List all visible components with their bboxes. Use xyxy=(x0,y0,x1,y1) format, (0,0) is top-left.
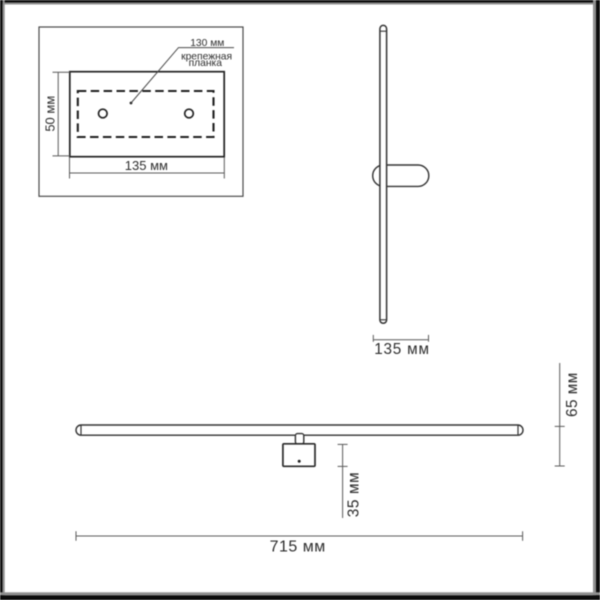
svg-text:планка: планка xyxy=(189,58,223,69)
svg-text:65 мм: 65 мм xyxy=(564,372,581,417)
svg-text:50 мм: 50 мм xyxy=(42,96,57,132)
svg-text:135 мм: 135 мм xyxy=(374,341,430,358)
svg-text:130 мм: 130 мм xyxy=(190,38,224,49)
svg-text:715 мм: 715 мм xyxy=(270,539,326,556)
svg-text:135 мм: 135 мм xyxy=(125,158,168,173)
svg-text:35 мм: 35 мм xyxy=(346,472,363,517)
